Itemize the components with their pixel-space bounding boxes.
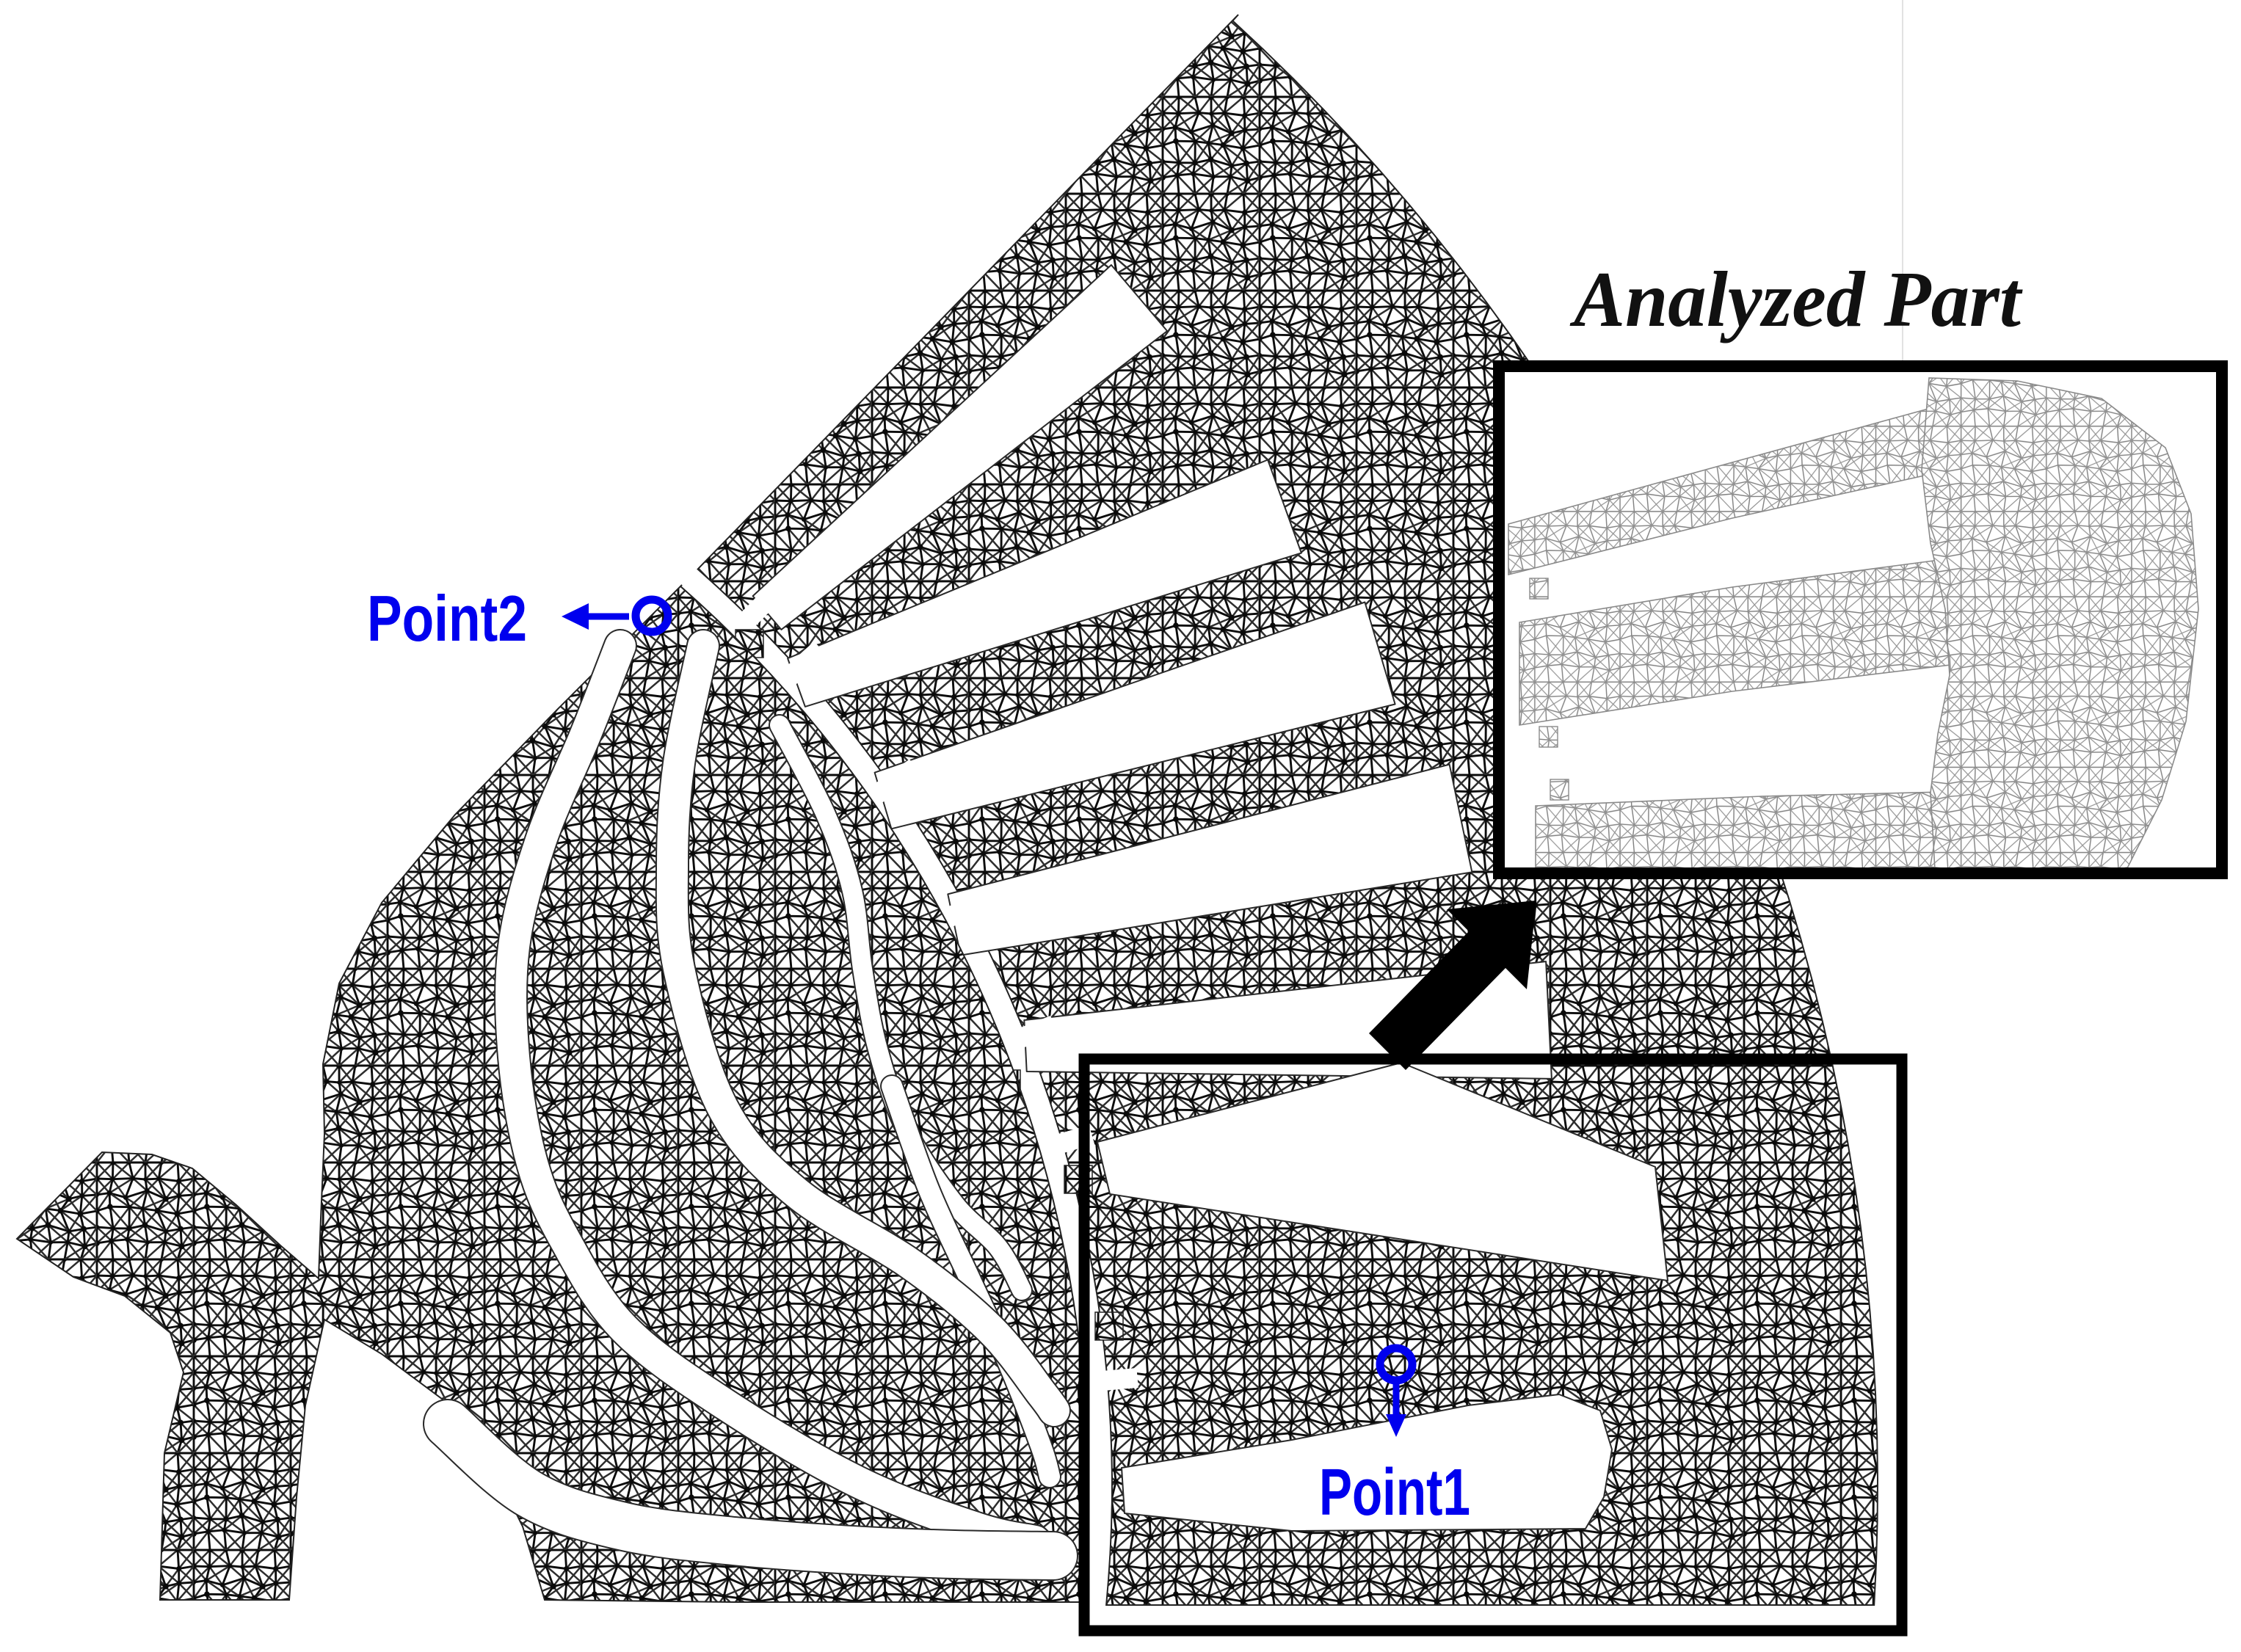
svg-text:Analyzed Part: Analyzed Part — [1569, 256, 2023, 343]
svg-text:Point2: Point2 — [367, 582, 527, 655]
svg-text:Point1: Point1 — [1319, 1456, 1470, 1529]
